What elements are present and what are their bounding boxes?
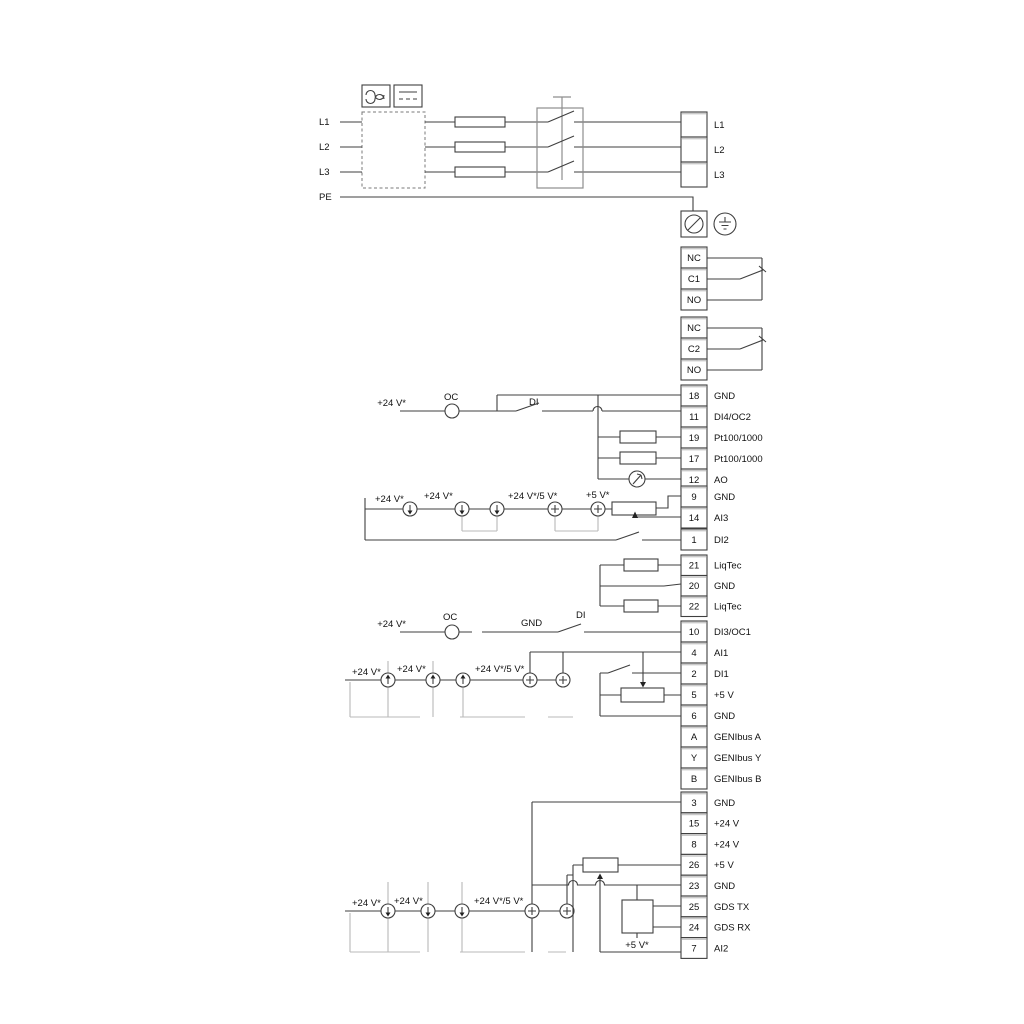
terminal-strip-io-c: 1DI2 (681, 529, 729, 550)
terminal-number: Y (691, 753, 698, 764)
terminal-number: 24 (689, 923, 700, 934)
terminal-number: B (691, 774, 697, 785)
terminal-label: AI2 (714, 943, 728, 954)
label-plus24: +24 V* (352, 898, 381, 909)
terminal-number: C2 (688, 344, 700, 355)
relay2-contact (707, 328, 766, 370)
terminal-number: 19 (689, 433, 700, 444)
terminal-label: LiqTec (714, 561, 742, 572)
resistor-liqtec-2 (624, 600, 658, 612)
terminal-label: GENIbus B (714, 774, 762, 785)
terminal-strip-di3: 10DI3/OC1 (681, 621, 751, 642)
io-row-b: +24 V* +24 V* +24 V*/5 V* +5 V* (365, 490, 681, 540)
label-plus24: +24 V* (424, 491, 453, 502)
terminal-cell (681, 137, 707, 162)
terminal-number: 25 (689, 902, 700, 913)
terminal-number: 9 (691, 492, 696, 503)
terminal-label: GND (714, 581, 735, 592)
terminal-label: DI2 (714, 535, 729, 546)
terminal-number: 7 (691, 943, 696, 954)
terminal-label: AI3 (714, 513, 728, 524)
terminal-number: 21 (689, 561, 700, 572)
terminal-number: 26 (689, 860, 700, 871)
terminal-label: Pt100/1000 (714, 433, 763, 444)
fuse-l3 (455, 167, 505, 177)
label-plus24-5: +24 V*/5 V* (508, 491, 558, 502)
terminal-cell (681, 162, 707, 187)
io-row-a: +24 V* OC DI (377, 392, 681, 487)
open-collector-icon (445, 404, 459, 418)
mains-section: L1 L2 L3 PE (319, 85, 693, 211)
terminal-label: +24 V (714, 839, 740, 850)
io-row-e: +24 V* +24 V* +24 V*/5 V* +5 V* (345, 802, 681, 952)
mains-label-l1: L1 (319, 117, 330, 128)
terminal-number: 2 (691, 669, 696, 680)
label-oc: OC (443, 612, 457, 623)
terminal-label: GND (714, 798, 735, 809)
terminal-strip-io-e: 3GND15+24 V8+24 V26+5 V23GND25GDS TX24GD… (681, 792, 751, 958)
terminal-strip-relay1: NCC1NO (681, 247, 707, 310)
terminal-strip-relay2: NCC2NO (681, 317, 707, 380)
gnd-23-wire (532, 881, 681, 886)
terminal-label: GDS TX (714, 902, 750, 913)
terminal-label: DI4/OC2 (714, 412, 751, 423)
terminal-strip-mains-out: L1L2L3 (681, 112, 725, 187)
terminal-strip-io-b: 9GND14AI3 (681, 486, 735, 528)
di3-switch-blade (558, 624, 581, 632)
terminal-number: 8 (691, 839, 696, 850)
fuse-l2 (455, 142, 505, 152)
terminal-number: 12 (689, 475, 700, 486)
terminal-label: +24 V (714, 819, 740, 830)
label-oc: OC (444, 392, 458, 403)
terminal-label: +5 V (714, 690, 734, 701)
label-plus24: +24 V* (394, 896, 423, 907)
terminal-label: AI1 (714, 648, 728, 659)
terminal-strip-io-d: 4AI12DI15+5 V6GNDAGENIbus AYGENIbus YBGE… (681, 642, 762, 789)
resistor-pt100-1 (620, 431, 656, 443)
dashed-module-box (362, 112, 425, 188)
terminal-number: 3 (691, 798, 696, 809)
terminal-number: 6 (691, 711, 696, 722)
wiring-diagram: L1 L2 L3 PE (0, 0, 1024, 1024)
terminal-number: NO (687, 295, 701, 306)
label-plus24-5: +24 V*/5 V* (475, 664, 525, 675)
mains-label-l3: L3 (319, 167, 330, 178)
terminal-number: 22 (689, 602, 700, 613)
label-di: DI (576, 610, 586, 621)
meter-needle-icon (629, 471, 645, 487)
pe-terminal (681, 211, 736, 237)
resistor-pt100-2 (620, 452, 656, 464)
label-gnd: GND (521, 618, 542, 629)
potentiometer-ai1 (600, 652, 681, 716)
label-plus24: +24 V* (397, 664, 426, 675)
terminal-number: NC (687, 253, 701, 264)
terminal-number: 10 (689, 627, 700, 638)
potentiometer-ai3 (612, 496, 681, 518)
terminal-label: GND (714, 881, 735, 892)
terminal-label: L2 (714, 145, 725, 156)
terminal-number: 4 (691, 648, 696, 659)
terminal-number: 15 (689, 819, 700, 830)
terminal-label: L3 (714, 170, 725, 181)
terminal-label: GDS RX (714, 923, 751, 934)
terminal-number: 17 (689, 454, 700, 465)
terminal-cell (681, 112, 707, 137)
di1-switch-blade (608, 665, 630, 673)
terminal-strip-io-a: 18GND11DI4/OC219Pt100/100017Pt100/100012… (681, 385, 763, 490)
terminal-label: DI3/OC1 (714, 627, 751, 638)
terminal-number: NC (687, 323, 701, 334)
di2-switch-blade (616, 532, 639, 540)
label-plus24: +24 V* (375, 494, 404, 505)
liqtec-row (600, 559, 681, 612)
di3-row: +24 V* OC GND DI (377, 610, 681, 639)
label-plus5: +5 V* (586, 490, 610, 501)
resistor-liqtec-1 (624, 559, 658, 571)
terminal-label: GENIbus Y (714, 753, 762, 764)
ac-supply-box (362, 85, 390, 107)
mains-label-pe: PE (319, 192, 332, 203)
terminal-label: AO (714, 475, 728, 486)
di4-box (497, 395, 681, 411)
terminal-label: GND (714, 711, 735, 722)
label-plus24: +24 V* (377, 398, 406, 409)
terminal-number: 11 (689, 412, 699, 423)
terminal-strip-liqtec: 21LiqTec20GND22LiqTec (681, 555, 742, 617)
open-collector-icon (445, 625, 459, 639)
dc-supply-box (394, 85, 422, 107)
earth-ground-icon (714, 213, 736, 235)
label-plus24: +24 V* (352, 667, 381, 678)
terminal-number: 23 (689, 881, 700, 892)
terminal-label: GND (714, 492, 735, 503)
terminal-number: 1 (691, 535, 696, 546)
terminal-number: A (691, 732, 698, 743)
terminal-label: L1 (714, 120, 725, 131)
terminal-label: DI1 (714, 669, 729, 680)
terminal-number: 18 (689, 391, 700, 402)
label-plus24: +24 V* (377, 619, 406, 630)
fuse-l1 (455, 117, 505, 127)
terminal-number: 5 (691, 690, 696, 701)
terminal-label: GND (714, 391, 735, 402)
gds-module-box: +5 V* (622, 885, 681, 951)
label-plus5-gds: +5 V* (625, 940, 649, 951)
label-plus24-5: +24 V*/5 V* (474, 896, 524, 907)
terminal-label: +5 V (714, 860, 734, 871)
wire-pe (340, 197, 693, 211)
terminal-number: C1 (688, 274, 700, 285)
mains-label-l2: L2 (319, 142, 330, 153)
terminal-label: GENIbus A (714, 732, 762, 743)
io-row-d: +24 V* +24 V* +24 V*/5 V* (345, 652, 681, 717)
terminal-number: 14 (689, 513, 700, 524)
terminal-number: 20 (689, 581, 700, 592)
main-switch (537, 97, 583, 188)
terminal-number: NO (687, 365, 701, 376)
terminal-label: Pt100/1000 (714, 454, 763, 465)
relay1-contact (707, 258, 766, 300)
terminal-label: LiqTec (714, 602, 742, 613)
